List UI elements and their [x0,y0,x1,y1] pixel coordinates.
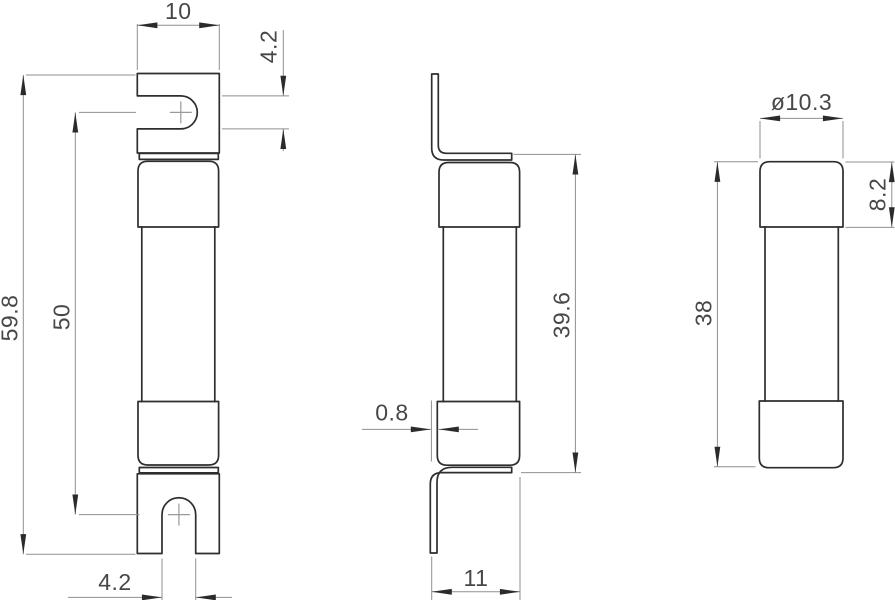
side-top-cap [439,163,520,228]
drawing-canvas: 10 4.2 59.8 50 [0,0,895,600]
front-top-cap [138,161,219,227]
dim-length-over-tags-label: 39.6 [549,292,575,339]
dim-cap-length: 8.2 [846,162,895,227]
dim-cap-diameter: ø10.3 [760,89,843,159]
dim-tag-slot-height-label: 4.2 [256,30,282,63]
dim-slot-width: 4.2 [68,559,232,600]
side-top-tag [432,74,512,160]
dim-overall-depth: 11 [432,477,520,600]
dim-tag-thickness-label: 0.8 [375,400,408,426]
end-top-cap [760,162,843,227]
side-bottom-tag [430,467,511,553]
dimensions: 10 4.2 59.8 50 [0,0,895,600]
dim-slot-center-distance: 50 [49,112,140,514]
dim-body-length-label: 38 [691,300,717,327]
front-bottom-slot-center-mark [168,504,190,526]
dim-tag-thickness: 0.8 [362,400,478,462]
dim-length-over-tags: 39.6 [514,154,582,472]
dim-cap-length-label: 8.2 [865,178,891,211]
front-top-slot-center-mark [170,101,192,123]
dim-body-length: 38 [691,162,759,467]
dim-cap-diameter-label: ø10.3 [771,89,832,115]
front-bottom-foot [139,468,218,473]
front-top-tag [137,74,219,154]
side-bottom-cap [437,402,519,466]
dim-tag-slot-height: 4.2 [222,30,289,151]
dim-overall-depth-label: 11 [464,565,489,591]
dim-overall-length-label: 59.8 [0,295,23,342]
end-view [759,162,843,468]
dim-slot-width-label: 4.2 [98,569,131,595]
fuse-technical-drawing: 10 4.2 59.8 50 [0,0,895,600]
front-bottom-cap [138,402,219,466]
dim-tag-width: 10 [137,0,219,70]
side-view [430,74,519,553]
dim-slot-center-distance-label: 50 [49,304,75,331]
front-top-foot [139,153,218,159]
dim-tag-width-label: 10 [165,0,192,24]
front-view [137,74,219,554]
end-bottom-cap [759,401,843,468]
